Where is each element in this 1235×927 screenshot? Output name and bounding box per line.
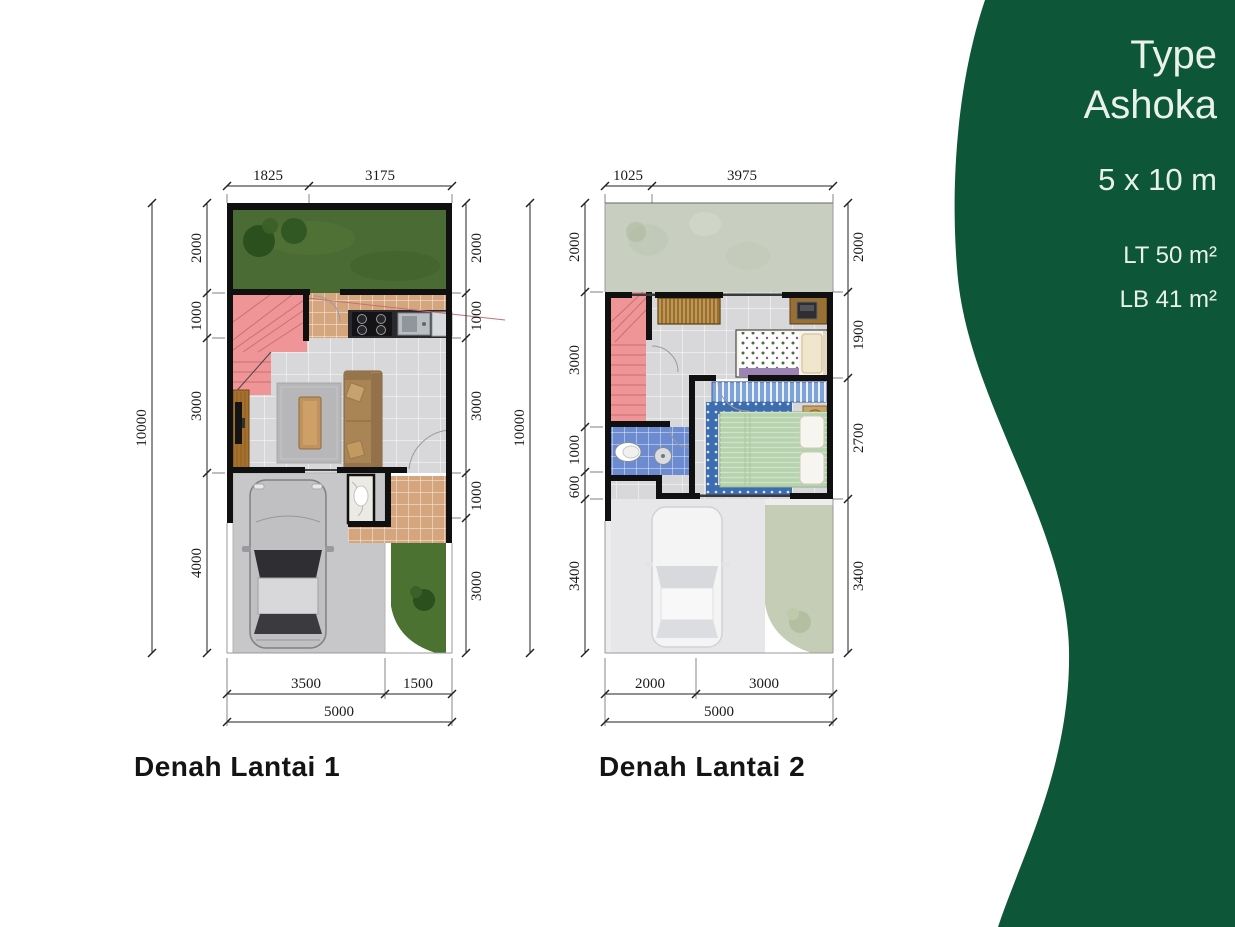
stairs [611, 292, 646, 430]
wardrobe-striped [712, 382, 826, 402]
dim-label: 1000 [469, 481, 485, 511]
pillow [802, 334, 822, 373]
window [305, 469, 337, 471]
dim-label: 1025 [613, 168, 643, 184]
dim-label: 10000 [134, 409, 150, 447]
dim-label: 2000 [851, 232, 867, 262]
dim-label: 4000 [189, 548, 205, 578]
dim-label: 3400 [567, 561, 583, 591]
floor-plan-2-svg: 1025 3975 10000 2000 3000 1000 600 3400 … [505, 160, 885, 735]
plan2-title: Denah Lantai 2 [599, 751, 805, 783]
car-roof [258, 578, 318, 614]
land-area: LT 50 m² [1084, 242, 1217, 270]
roof-back [605, 203, 833, 292]
lot-size: 5 x 10 m [1084, 162, 1217, 198]
window [632, 294, 655, 297]
windshield [254, 550, 322, 578]
dim-label: 5000 [324, 704, 354, 720]
ghost-car [645, 507, 730, 647]
lower-roof [605, 499, 833, 653]
single-bed [736, 330, 827, 377]
type-name: Ashoka [1084, 80, 1217, 130]
tv-cabinet [233, 390, 249, 473]
dim-label: 3000 [189, 391, 205, 421]
dim-label: 2000 [189, 233, 205, 263]
headlight [254, 484, 264, 489]
rug [277, 383, 341, 463]
dim-label: 3000 [469, 391, 485, 421]
tv [235, 402, 242, 444]
dim-label: 1000 [469, 301, 485, 331]
pillow [800, 416, 824, 448]
floor-plan-1-svg: 1825 3175 10000 2000 1000 3000 4000 2000… [125, 160, 505, 735]
headlight [312, 484, 322, 489]
dim-label: 3000 [749, 676, 779, 692]
dim-label: 2000 [567, 232, 583, 262]
pillow [346, 440, 364, 458]
kitchen-counter [348, 310, 452, 338]
side-mirror [242, 546, 251, 552]
planter [348, 475, 374, 523]
dim-label: 3000 [567, 345, 583, 375]
dim-label: 3400 [851, 561, 867, 591]
tree-icon [281, 218, 307, 244]
front-garden [391, 543, 446, 653]
pillow [800, 452, 824, 484]
dim-label: 3975 [727, 168, 757, 184]
dim-label: 10000 [512, 409, 528, 447]
wardrobe-wood [658, 298, 720, 324]
brochure-canvas: 1825 3175 10000 2000 1000 3000 4000 2000… [0, 0, 1235, 927]
window [723, 294, 782, 297]
building-area: LB 41 m² [1084, 286, 1217, 314]
dim-label: 1500 [403, 676, 433, 692]
dim-label: 1825 [253, 168, 283, 184]
rear-window [254, 614, 322, 634]
double-bed [706, 402, 827, 497]
green-roof [765, 505, 833, 653]
window [700, 495, 790, 498]
car [242, 480, 334, 648]
bathroom [611, 427, 689, 475]
back-garden [227, 209, 452, 293]
kitchen [309, 293, 452, 338]
dim-label: 3500 [291, 676, 321, 692]
side-mirror [325, 546, 334, 552]
dim-label: 2000 [635, 676, 665, 692]
desk [790, 296, 827, 324]
type-panel: Type Ashoka 5 x 10 m LT 50 m² LB 41 m² [1084, 30, 1217, 314]
plan1-title: Denah Lantai 1 [134, 751, 340, 783]
dim-label: 1000 [567, 435, 583, 465]
dim-label: 600 [567, 476, 583, 499]
dim-label: 3175 [365, 168, 395, 184]
dim-label: 2000 [469, 233, 485, 263]
type-label: Type [1084, 30, 1217, 80]
dim-label: 1000 [189, 301, 205, 331]
sofa [344, 371, 382, 472]
dim-label: 3000 [469, 571, 485, 601]
tree-shadow [626, 222, 646, 242]
dim-label: 2700 [851, 423, 867, 453]
dim-label: 5000 [704, 704, 734, 720]
dim-label: 1900 [851, 320, 867, 350]
